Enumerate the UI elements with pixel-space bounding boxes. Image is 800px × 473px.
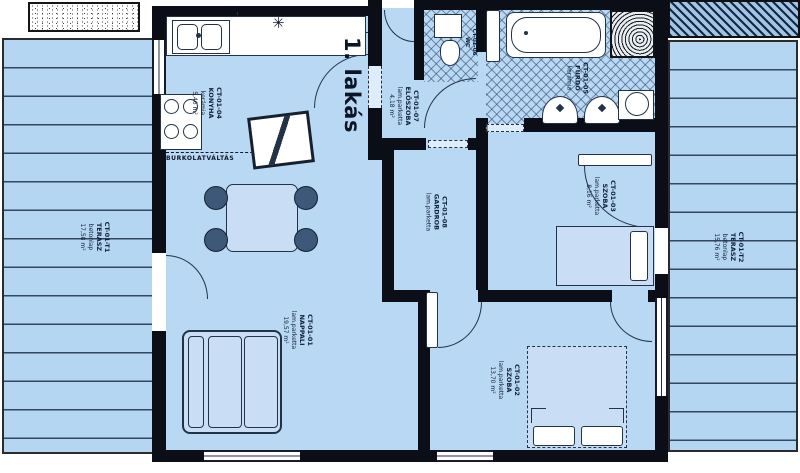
room-material: kerámia: [565, 66, 573, 90]
planter-box: [28, 2, 140, 32]
bed-corner-notch: [531, 408, 546, 423]
room-code: CT-01-07: [412, 90, 420, 122]
dining-chair: [204, 186, 228, 210]
neighbor-hatch-block: [668, 0, 800, 38]
living-room-window: [204, 450, 300, 462]
kitchen-window: [152, 40, 166, 94]
room-label-terrace-right: CT-01-T2 TERASZ betonlap 15,76 m²: [713, 232, 745, 263]
room-name: GARDROB: [431, 194, 439, 230]
terrace-door-opening-left: [152, 253, 166, 331]
room-area: 4,18 m²: [388, 94, 396, 118]
wall: [424, 0, 668, 10]
room-material: betonlap: [721, 234, 729, 260]
bathtub-inner: [511, 17, 601, 53]
sofa-cushion: [208, 336, 242, 428]
room-name: NAPPALI: [297, 314, 305, 345]
floor-change-note: BURKOLATVÁLTÁS: [166, 155, 234, 162]
room-label-bedroom-small: CT-01-03 SZOBA lam.parketta 8,16 m²: [585, 177, 617, 215]
room-material: lam.parketta: [396, 87, 404, 125]
room-label-wc: CT-01-06 WC: [463, 29, 477, 56]
bathtub-drain-icon: [524, 31, 528, 35]
pillow: [533, 426, 575, 446]
entry-door-opening: [382, 0, 414, 8]
room-label-wardrobe: CT-01-08 GARDROB lam.parketta: [424, 193, 449, 231]
dining-table: [226, 184, 298, 252]
wall: [152, 6, 378, 16]
bedroom-door-leaf: [578, 154, 652, 166]
tv-cabinet: [247, 110, 315, 169]
room-label-hall: CT-01-07 ELŐSZOBA lam.parketta 4,18 m²: [388, 86, 420, 125]
kitchen-passage-threshold: [368, 66, 382, 108]
floor-plan-canvas: ✳ 1. lakás CT-01-T1 TERASZ betonlap 17,5…: [0, 0, 800, 473]
room-label-terrace-left: CT-01-T1 TERASZ betonlap 17,58 m²: [79, 222, 111, 253]
bathroom-door-leaf: [486, 10, 500, 62]
room-code: CT-01-01: [306, 314, 314, 346]
shower-cabin: [610, 10, 655, 58]
room-name: SZOBA: [504, 368, 512, 393]
room-area: 5,46 m²: [191, 91, 199, 115]
room-material: lam.parketta: [424, 193, 432, 231]
room-name: WC: [463, 37, 470, 47]
room-name: TERASZ: [728, 233, 736, 261]
wall: [382, 150, 394, 302]
dining-chair: [294, 186, 318, 210]
room-label-kitchen: CT-01-04 KONYHA kerámia 5,46 m²: [191, 87, 223, 119]
room-material: kerámia: [199, 91, 207, 115]
floor-change-dash-line: [166, 152, 258, 153]
stove-burner-icon: [183, 124, 198, 139]
apartment-title: 1. lakás: [340, 37, 364, 133]
wall: [468, 138, 488, 150]
room-material: lam.parketta: [497, 361, 505, 399]
room-area: 17,58 m²: [79, 223, 87, 250]
kitchen-sink-bowl: [177, 24, 198, 50]
stove-burner-icon: [164, 124, 179, 139]
pillow: [581, 426, 623, 446]
sofa-backrest: [188, 336, 204, 428]
terrace-door-opening-right: [655, 228, 668, 274]
room-code: CT-01-06: [470, 29, 477, 56]
wall: [414, 0, 424, 80]
sofa-cushion: [244, 336, 278, 428]
room-area: 19,57 m²: [282, 316, 290, 343]
faucet-icon: [196, 33, 201, 38]
wardrobe-threshold: [428, 140, 468, 148]
dining-chair: [204, 228, 228, 252]
room-label-living-room: CT-01-01 NAPPALI lam.parketta 19,57 m²: [282, 311, 314, 349]
kitchen-sink-bowl: [201, 24, 222, 50]
room-area: 15,76 m²: [713, 233, 721, 260]
room-name: SZOBA: [600, 184, 608, 209]
room-code: CT-01-02: [513, 364, 521, 396]
room-code: CT-01-T1: [103, 222, 111, 253]
stove-burner-icon: [164, 99, 179, 114]
room-code: CT-01-03: [609, 180, 617, 212]
room-material: lam.parketta: [290, 311, 298, 349]
room-name: ELŐSZOBA: [403, 86, 411, 125]
room-label-bedroom-large: CT-01-02 SZOBA lam.parketta 13,70 m²: [489, 361, 521, 399]
pillow: [630, 231, 648, 281]
bedroom-side-window: [655, 298, 668, 396]
wall: [368, 108, 382, 160]
room-area: 8,16 m²: [585, 184, 593, 208]
wall: [368, 0, 382, 66]
dining-chair: [294, 228, 318, 252]
bedroom-window: [437, 450, 493, 462]
light-symbol-icon: ✳: [272, 16, 285, 31]
room-label-bathroom: CT-01-05 FÜRDŐ kerámia: [565, 62, 590, 94]
room-name: FÜRDŐ: [572, 65, 580, 91]
room-code: CT-01-T2: [737, 232, 745, 263]
wall: [382, 138, 426, 150]
toilet-tank: [434, 14, 462, 38]
wall: [478, 290, 612, 302]
room-area: 13,70 m²: [489, 366, 497, 393]
bedroom2-door-leaf: [426, 292, 438, 348]
washing-machine-drum-icon: [625, 92, 649, 116]
room-name: KONYHA: [206, 88, 214, 119]
room-material: betonlap: [87, 224, 95, 250]
wall: [476, 150, 488, 290]
room-code: CT-01-04: [215, 87, 223, 119]
room-code: CT-01-05: [581, 62, 589, 94]
room-code: CT-01-08: [440, 196, 448, 228]
room-name: TERASZ: [94, 223, 102, 251]
toilet-bowl: [440, 40, 460, 66]
bathroom-threshold: [486, 124, 524, 132]
bed-corner-notch: [609, 408, 624, 423]
room-material: lam.parketta: [593, 177, 601, 215]
